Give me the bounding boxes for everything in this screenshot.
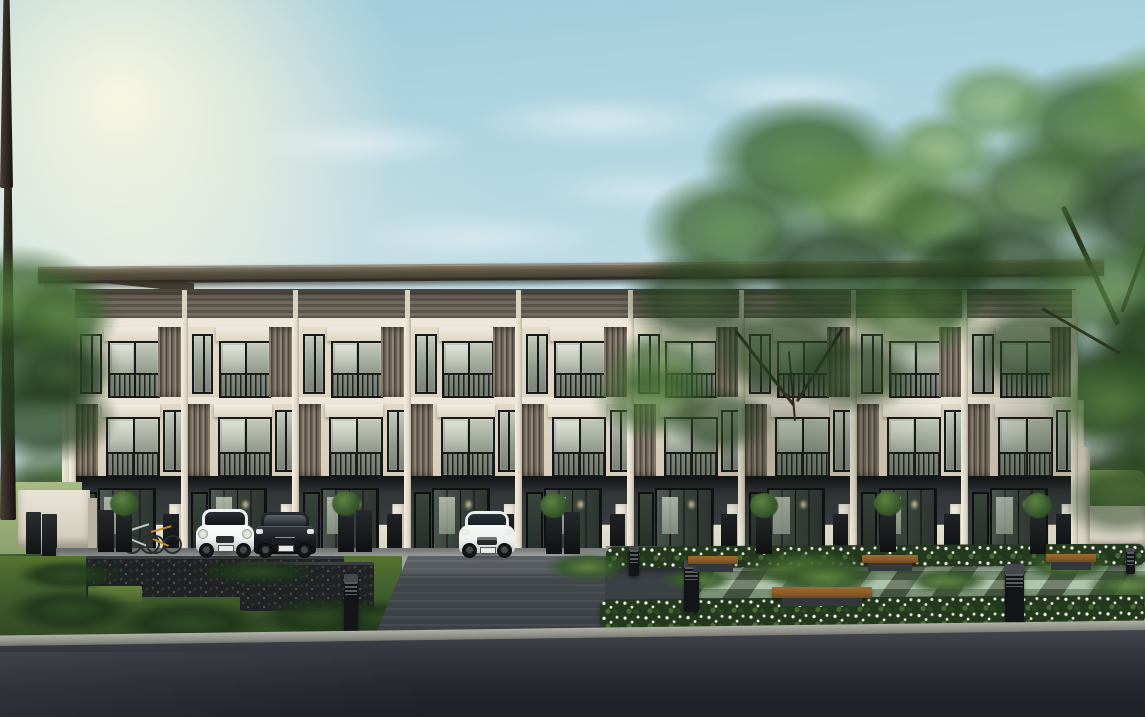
sheer-curtain [556,421,579,454]
balcony-railing [330,452,382,476]
shrub-planter [564,512,580,554]
car-windshield [264,515,306,526]
garden-bench [1046,554,1096,562]
leaf-blob [10,340,110,410]
interior-light-glow [910,499,919,510]
third-floor-window [331,341,383,398]
clerestory-mullion [405,290,410,318]
car-headlight [242,529,252,539]
louvre-screen-upper [381,327,405,397]
shrub-planter [116,510,132,552]
cloud [250,120,480,166]
third-floor-balcony-slab [327,327,383,341]
fence-return-wall [88,498,97,550]
ground-floor-side-window [638,492,655,552]
white-mini-car [196,509,254,556]
second-floor-window [218,417,272,477]
car-grille [275,537,295,544]
architectural-rendering: Daytime architectural rendering of a mod… [0,0,1145,717]
third-floor-window [219,341,271,398]
car-headlight [256,529,263,534]
garden-bench [862,555,918,563]
interior-curtain [439,497,455,535]
balcony-railing [220,373,270,397]
bollard-light [629,546,639,576]
grass-tuft [545,552,630,582]
shrub-planter [546,512,562,554]
second-floor-balcony-slab [214,404,272,417]
license-plate [480,547,496,554]
balcony-railing [219,452,271,476]
second-floor-balcony-slab [437,404,495,417]
second-floor-balcony-slab [325,404,383,417]
sheer-curtain [335,345,357,376]
third-floor-balcony-slab [439,327,495,341]
car-wheel [199,543,214,558]
car-headlight [461,529,469,535]
shrub-planter [756,512,772,554]
third-floor-side-window [303,334,325,394]
car-wheel [297,543,312,558]
louvre-screen-upper [493,327,517,397]
sheer-curtain [558,345,580,376]
cloud [350,215,610,259]
clerestory-mullion [516,290,521,318]
white-suv-car [459,511,515,556]
car-wheel [236,543,251,558]
balcony-railing [443,373,493,397]
bicycle-frame [151,525,172,533]
louvre-screen-lower [297,404,321,476]
grass-tuft [195,558,320,586]
balcony-railing [442,452,494,476]
louvre-screen-lower [186,404,210,476]
second-floor-window [441,417,495,477]
license-plate [218,545,234,552]
car-windshield [205,512,245,525]
third-floor-side-window [415,334,437,394]
third-floor-window [442,341,494,398]
orange-bicycle [146,518,182,554]
balcony-railing [332,373,382,397]
third-floor-side-window [526,334,548,394]
car-headlight [198,529,208,539]
garden-bench [772,587,872,598]
second-floor-window [329,417,383,477]
sheer-curtain [222,421,245,454]
dark-planter-box [42,514,57,556]
car-wheel [258,543,273,558]
tree-trunk [0,0,13,188]
louvre-screen-upper [269,327,293,397]
sheer-curtain [445,421,468,454]
leaf-blob [790,330,920,415]
sheer-curtain [446,345,468,376]
interior-light-glow [464,499,473,510]
shrub-planter [98,510,114,552]
bollard-light [344,574,358,632]
clerestory-mullion [182,290,187,318]
license-plate [278,545,294,552]
third-floor-side-window [192,334,214,394]
shrub-planter [1030,512,1046,554]
shrub-planter [356,510,372,552]
car-headlight [307,529,314,534]
grass-tuft [15,560,125,590]
dark-planter-box [26,512,41,554]
facade-column [404,318,411,556]
second-floor-window [552,417,606,477]
bollard-light [1126,548,1135,574]
clerestory-mullion [293,290,298,318]
shrub-planter [880,510,896,552]
balcony-railing [553,452,605,476]
louvre-screen-lower [409,404,433,476]
shrub-planter [338,510,354,552]
garden-bench [688,556,738,564]
road-sheen [0,652,710,717]
sheer-curtain [333,421,356,454]
leaf-blob [930,60,1060,145]
car-grille [477,537,497,545]
third-floor-balcony-slab [216,327,272,341]
facade-column [515,318,522,556]
car-wheel [497,543,512,558]
louvre-screen-lower [520,404,544,476]
third-floor-balcony-slab [550,327,606,341]
grass-tuft [905,568,990,594]
car-headlight [505,529,513,535]
louvre-screen-upper [158,327,182,397]
black-sedan-car [254,512,316,556]
sheer-curtain [223,345,245,376]
leaf-blob [890,260,990,330]
leaf-blob [665,385,775,455]
interior-light-glow [576,499,585,510]
ground-floor-side-window [414,492,431,552]
car-grille [216,536,234,543]
balcony-railing [107,452,159,476]
car-wheel [462,543,477,558]
